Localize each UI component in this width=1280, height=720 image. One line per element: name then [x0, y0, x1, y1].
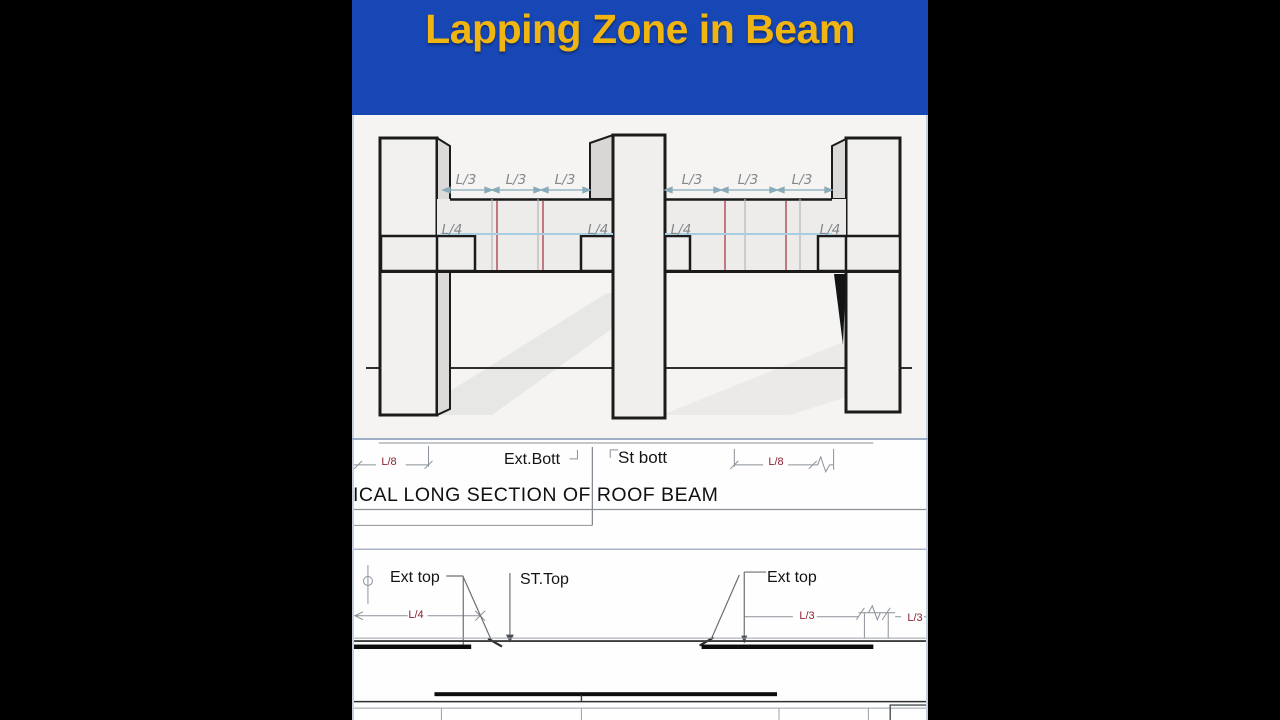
- dim-l4-support4: L/4: [820, 222, 841, 238]
- dim-l3-span1: L/3: [456, 172, 477, 188]
- label-st-top: ST.Top: [520, 571, 569, 589]
- page-title: Lapping Zone in Beam: [425, 6, 855, 53]
- label-ext-top-right: Ext top: [767, 569, 817, 587]
- dim-l4-support3: L/4: [671, 222, 692, 238]
- dim-l4-support1: L/4: [442, 222, 463, 238]
- dim-l3-span4: L/3: [682, 172, 703, 188]
- letterbox-right: [928, 0, 1280, 720]
- title-banner: Lapping Zone in Beam: [352, 0, 928, 115]
- dim-l4-floor: L/4: [408, 609, 423, 621]
- dim-l3-span3: L/3: [555, 172, 576, 188]
- dim-l3-span2: L/3: [506, 172, 527, 188]
- dim-l3-floor-first: L/3: [799, 610, 814, 622]
- dim-l3-floor-second: L/3: [907, 612, 922, 624]
- dim-l8-left: L/8: [381, 456, 396, 468]
- video-frame: Lapping Zone in Beam: [0, 0, 1280, 720]
- beam-3d-linework: [352, 115, 928, 440]
- cad-section-drawing: L/8 Ext.Bott St bott L/8 ICAL LONG SECTI…: [352, 440, 928, 720]
- label-ext-bott: Ext.Bott: [504, 451, 560, 469]
- beam-3d-diagram: L/3 L/3 L/3 L/3 L/3 L/3 L/4 L/4 L/4 L/4: [352, 115, 928, 440]
- dim-l3-span5: L/3: [738, 172, 759, 188]
- label-ext-top-left: Ext top: [390, 569, 440, 587]
- dim-l8-right: L/8: [768, 456, 783, 468]
- video-content: Lapping Zone in Beam: [352, 0, 928, 720]
- letterbox-left: [0, 0, 352, 720]
- dim-l3-span6: L/3: [792, 172, 813, 188]
- drawing-caption: ICAL LONG SECTION OF ROOF BEAM: [353, 484, 718, 507]
- dim-l4-support2: L/4: [588, 222, 609, 238]
- label-st-bott: St bott: [618, 448, 667, 468]
